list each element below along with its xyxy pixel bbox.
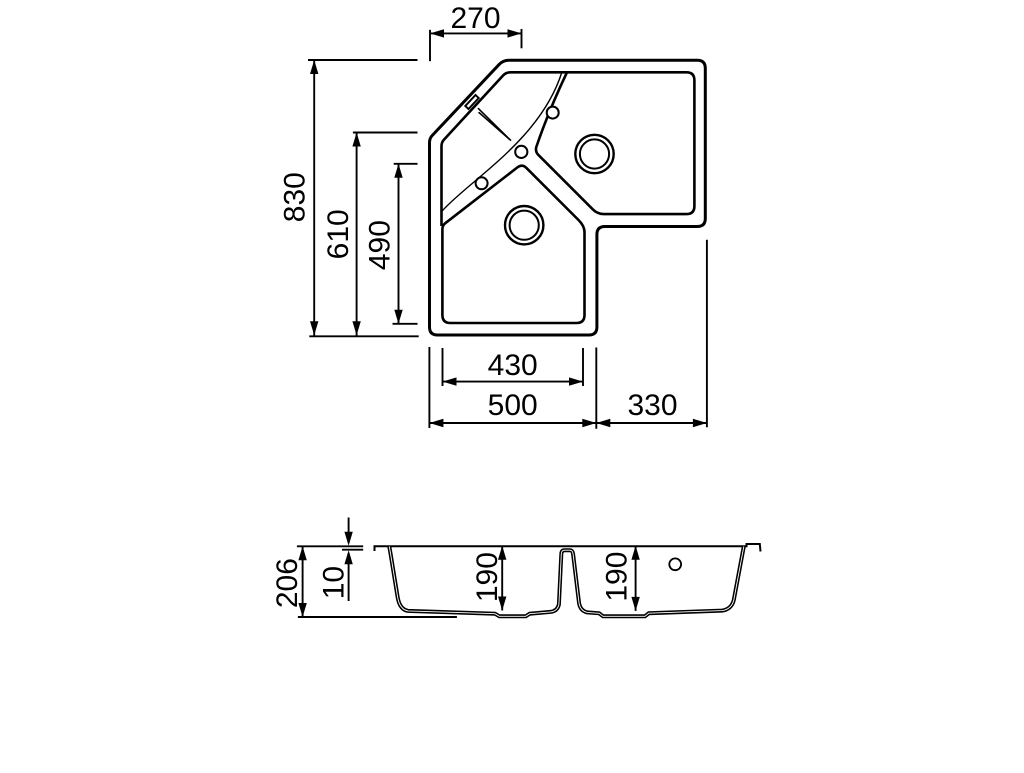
svg-text:270: 270 <box>450 2 500 35</box>
svg-text:490: 490 <box>364 220 397 270</box>
svg-text:830: 830 <box>279 172 312 222</box>
svg-text:500: 500 <box>488 389 538 422</box>
svg-text:430: 430 <box>488 349 538 382</box>
svg-text:10: 10 <box>317 566 350 599</box>
svg-text:190: 190 <box>601 552 634 602</box>
svg-text:330: 330 <box>627 389 677 422</box>
svg-text:610: 610 <box>322 209 355 259</box>
svg-text:206: 206 <box>271 558 304 608</box>
svg-text:190: 190 <box>471 552 504 602</box>
